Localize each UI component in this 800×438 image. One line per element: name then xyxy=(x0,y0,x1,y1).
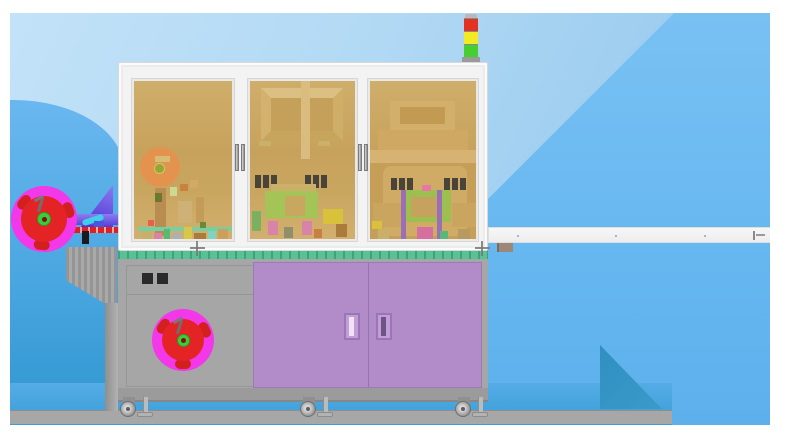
window-door-handle xyxy=(364,144,368,171)
machine-part xyxy=(284,227,293,238)
machine-part xyxy=(190,180,198,188)
door-handle-slot xyxy=(381,317,386,336)
conveyor-end-sensor xyxy=(753,231,755,240)
machine-part xyxy=(407,178,413,190)
machine-part xyxy=(208,231,216,241)
machine-part xyxy=(321,175,327,188)
process-window-3 xyxy=(368,79,478,241)
machine-enclosure xyxy=(118,62,488,251)
machine-part xyxy=(164,229,170,241)
tower-lamp-green xyxy=(464,44,478,57)
machine-part xyxy=(155,193,162,202)
door-handle-right xyxy=(376,313,392,340)
machine-part xyxy=(302,221,312,235)
conveyor-dot xyxy=(517,235,519,237)
machine-part xyxy=(155,156,170,162)
door-handle-slot xyxy=(349,317,354,336)
machine-part xyxy=(263,175,269,188)
takeup-reel-cabinet xyxy=(152,309,214,371)
machine-part xyxy=(400,107,445,124)
conveyor-dot xyxy=(704,235,706,237)
machine-part xyxy=(178,201,192,223)
machine-part xyxy=(170,187,177,196)
conveyor-end-bracket xyxy=(756,234,765,236)
machine-part xyxy=(452,178,458,190)
machine-part xyxy=(184,227,192,241)
signal-tower-base xyxy=(462,57,480,62)
machine-part xyxy=(323,209,343,224)
machine-part xyxy=(370,150,478,163)
carrier-tape xyxy=(74,227,119,233)
window-door-handle xyxy=(358,144,362,171)
machine-part xyxy=(268,221,278,235)
machine-part xyxy=(148,220,154,226)
left-cabinet-panel-seam xyxy=(126,294,256,295)
cabinet-double-doors xyxy=(253,262,482,388)
machine-part xyxy=(422,185,431,191)
machine-part xyxy=(336,224,347,237)
machine-part xyxy=(391,178,397,190)
window-door-handle xyxy=(241,144,245,171)
machine-part xyxy=(218,229,228,241)
machine-part xyxy=(411,197,437,217)
tape-clamp xyxy=(82,231,89,244)
render-canvas xyxy=(10,13,770,425)
machine-part xyxy=(401,190,406,239)
machine-part xyxy=(444,178,450,190)
cabinet-button-left xyxy=(142,273,153,284)
signal-tower xyxy=(462,13,480,63)
machine-part xyxy=(194,233,206,241)
machine-part xyxy=(318,141,330,146)
window-door-handle xyxy=(235,144,239,171)
door-divider xyxy=(368,263,369,387)
cabinet-button-right xyxy=(157,273,168,284)
render-page xyxy=(0,0,800,438)
machine-part xyxy=(259,141,271,146)
machine-part xyxy=(458,229,470,239)
machine-part xyxy=(172,233,182,241)
worktable-edge xyxy=(118,250,488,259)
machine-part xyxy=(196,197,204,223)
machine-part xyxy=(314,229,322,238)
supply-reel-left xyxy=(11,186,77,252)
machine-part xyxy=(255,175,261,188)
machine-part xyxy=(142,231,152,241)
door-handle-left xyxy=(344,313,360,340)
floor-strip xyxy=(10,410,672,424)
reel-core xyxy=(181,338,186,343)
tower-lamp-red xyxy=(464,18,478,31)
machine-base-frame xyxy=(118,388,488,402)
conveyor-dot xyxy=(615,235,617,237)
process-window-2 xyxy=(248,79,357,241)
conveyor-support-bracket xyxy=(497,243,513,252)
machine-part xyxy=(452,203,476,227)
machine-part xyxy=(154,233,162,241)
machine-part xyxy=(372,221,382,229)
machine-part xyxy=(399,178,405,190)
tower-lamp-yellow xyxy=(464,31,478,44)
machine-part xyxy=(285,196,305,216)
process-window-1 xyxy=(132,79,234,241)
machine-part xyxy=(440,231,448,239)
machine-part xyxy=(252,211,261,231)
machine-part xyxy=(180,184,188,191)
machine-part xyxy=(378,229,389,239)
machine-part xyxy=(417,227,433,239)
machine-left-leg xyxy=(105,303,118,411)
machine-part xyxy=(200,222,206,228)
machine-part xyxy=(460,178,466,190)
reel-core xyxy=(42,217,47,222)
machine-part xyxy=(301,81,310,159)
machine-part xyxy=(154,163,165,174)
output-conveyor xyxy=(488,227,770,243)
